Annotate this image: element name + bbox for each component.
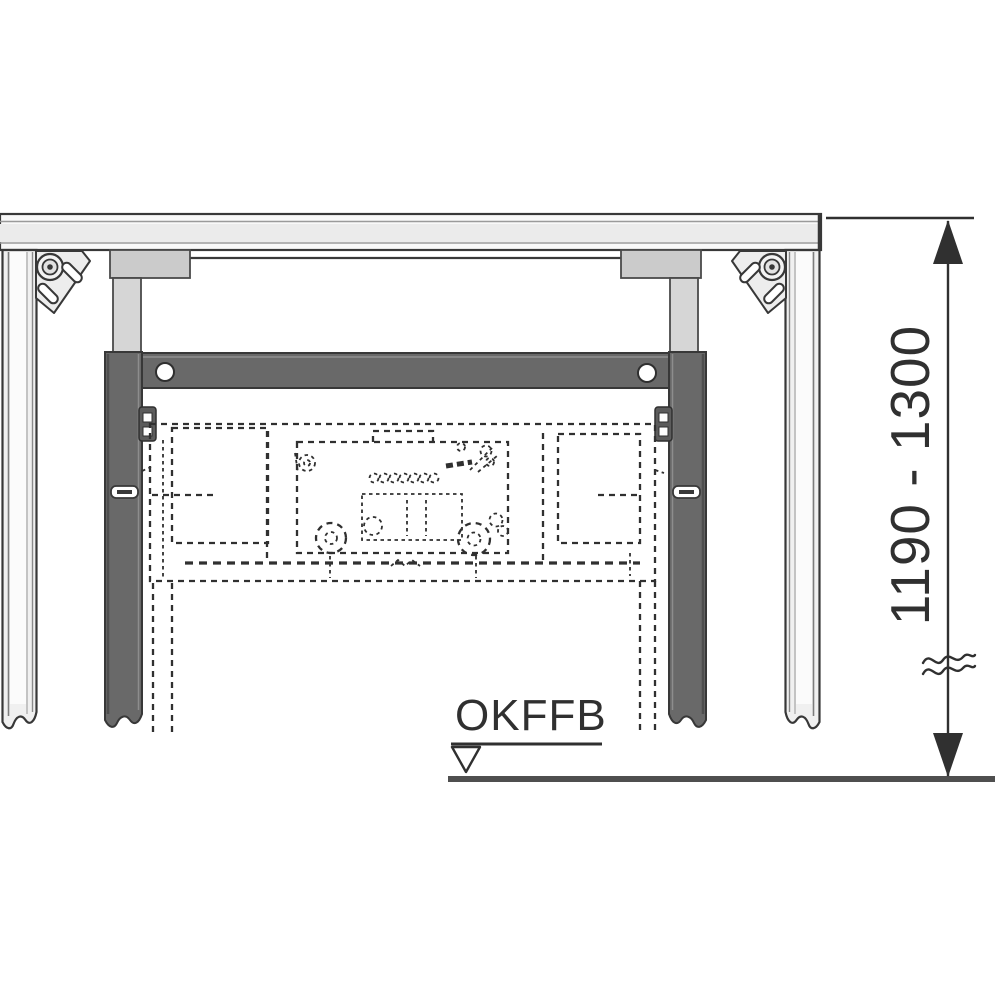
float-coil [370, 474, 439, 483]
small-fitting [364, 517, 382, 535]
arrow-down-icon [933, 733, 963, 777]
top-rail [0, 214, 821, 250]
fill-valve-detail [446, 443, 497, 472]
height-range-label: 1190 - 1300 [876, 305, 944, 645]
right-module-rail [655, 352, 706, 727]
floor-reference-label: OKFFB [455, 694, 607, 738]
level-triangle-icon [452, 747, 480, 772]
left-corner-bracket [36, 251, 90, 313]
mounting-crossbar [105, 353, 706, 388]
left-pipe-connection [316, 523, 346, 553]
module-right-panel [558, 434, 640, 543]
okffb-level-marker [451, 744, 602, 772]
cistern-tank [295, 431, 508, 555]
module-outer-outline [150, 424, 655, 581]
left-wall-post [3, 250, 37, 728]
right-corner-bracket [732, 251, 786, 313]
arrow-up-icon [933, 220, 963, 264]
cistern-top-notch [373, 431, 433, 442]
left-hanger-bracket [110, 250, 190, 356]
installation-diagram: OKFFB 1190 - 1300 [0, 0, 1000, 1000]
crossbar-left-hole [156, 363, 174, 381]
left-module-rail [105, 352, 156, 727]
crossbar-right-hole [638, 364, 656, 382]
right-hanger-bracket [621, 250, 701, 356]
module-left-panel [172, 428, 268, 543]
diagram-drawing [0, 0, 1000, 1000]
right-wall-post [786, 250, 820, 728]
cistern-module-dashed-outline [142, 424, 664, 734]
